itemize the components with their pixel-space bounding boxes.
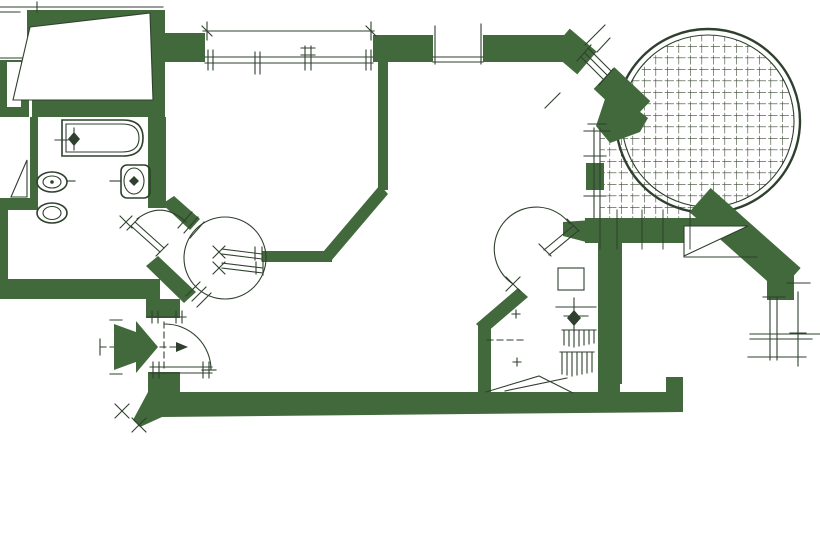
top-wall-seg3 — [483, 35, 565, 62]
boiler — [564, 298, 588, 332]
boiler-box — [558, 268, 584, 290]
partition-stub — [262, 251, 332, 262]
left-edge-notch — [0, 10, 27, 60]
floor-plan-page — [0, 0, 820, 540]
bidet — [37, 172, 75, 192]
hinge-cross — [506, 277, 520, 291]
toilet — [37, 203, 67, 223]
top-wall-seg2 — [373, 35, 433, 62]
entrance-door — [100, 311, 216, 378]
floor-plan-drawing — [0, 0, 820, 540]
left-wall-triangle — [11, 160, 27, 197]
top-wall-seg1 — [160, 33, 205, 62]
bottom-wall-notch — [620, 384, 638, 392]
bathroom-bottom-wall — [0, 279, 160, 299]
entrance-wall-above — [146, 299, 180, 318]
small-room-left-wall — [478, 324, 491, 393]
top-window-small — [433, 24, 483, 64]
washbasin — [110, 165, 150, 198]
radiator-comb-upper — [562, 330, 596, 347]
vestibule-swing-door — [184, 217, 266, 299]
terrace-window-stub — [586, 163, 604, 190]
tub-faucet — [68, 132, 80, 146]
radiator-comb-lower — [560, 352, 594, 376]
bathroom-right-wall — [148, 117, 166, 208]
right-wall-pier — [767, 262, 794, 300]
partition-diagonal — [323, 185, 388, 261]
hinge-crosses — [213, 246, 225, 274]
bottom-wall — [133, 392, 683, 427]
bathroom-left-wall — [30, 117, 38, 205]
small-room-fixtures — [487, 268, 596, 376]
bottom-wall-zigzag — [486, 376, 573, 393]
top-window-large — [202, 22, 376, 74]
axis-arrowhead — [176, 342, 188, 352]
entrance-arrow — [114, 321, 158, 373]
left-exterior-wall — [0, 205, 8, 285]
wall-joint-gap — [29, 100, 32, 117]
small-room-right-wall — [598, 243, 622, 393]
small-room-door — [494, 207, 579, 291]
partition-vertical — [378, 62, 388, 190]
bathroom-fixtures — [37, 120, 150, 223]
hinge-cross — [120, 216, 132, 228]
bottom-wall-bump — [666, 377, 683, 393]
plus-marks — [512, 310, 521, 366]
small-room-door-arc — [494, 207, 570, 284]
bathtub — [55, 120, 143, 156]
